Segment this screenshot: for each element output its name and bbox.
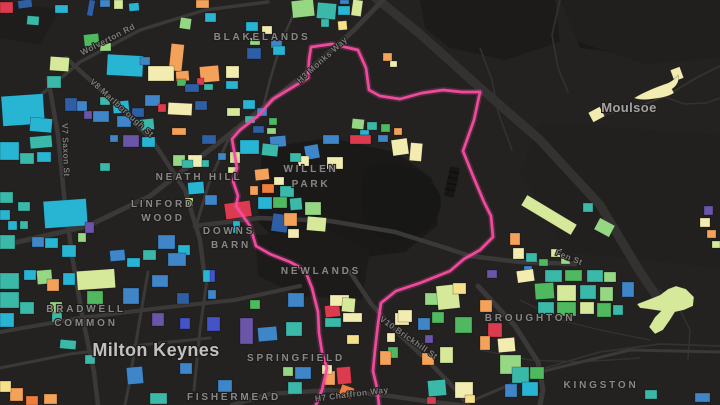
building-parcel[interactable] bbox=[250, 300, 260, 309]
building-parcel[interactable] bbox=[93, 111, 109, 122]
building-parcel[interactable] bbox=[622, 282, 634, 297]
building-parcel[interactable] bbox=[306, 216, 326, 232]
building-parcel[interactable] bbox=[100, 0, 110, 7]
building-parcel[interactable] bbox=[77, 101, 87, 111]
building-parcel[interactable] bbox=[600, 287, 613, 301]
building-parcel[interactable] bbox=[597, 303, 611, 317]
label-broughton: BROUGHTON bbox=[485, 313, 576, 324]
label-downs-barn-1: DOWNS bbox=[203, 226, 255, 237]
building-parcel[interactable] bbox=[114, 0, 123, 9]
building-parcel[interactable] bbox=[158, 235, 175, 249]
building-parcel[interactable] bbox=[390, 61, 397, 67]
building-parcel[interactable] bbox=[78, 233, 86, 242]
building-parcel[interactable] bbox=[185, 84, 199, 92]
label-downs-barn-2: BARN bbox=[211, 240, 251, 251]
building-parcel[interactable] bbox=[85, 222, 94, 233]
building-parcel[interactable] bbox=[530, 367, 544, 379]
building-parcel[interactable] bbox=[0, 210, 10, 220]
building-parcel[interactable] bbox=[168, 102, 193, 115]
label-bradwell-common-1: BRADWELL bbox=[46, 304, 126, 315]
building-parcel[interactable] bbox=[100, 163, 110, 171]
building-parcel[interactable] bbox=[106, 54, 143, 77]
building-parcel[interactable] bbox=[182, 160, 193, 168]
building-parcel[interactable] bbox=[218, 153, 226, 160]
building-parcel[interactable] bbox=[425, 335, 433, 343]
building-parcel[interactable] bbox=[30, 135, 53, 149]
building-parcel[interactable] bbox=[604, 272, 616, 282]
building-parcel[interactable] bbox=[534, 282, 554, 299]
building-parcel[interactable] bbox=[512, 367, 529, 383]
building-parcel[interactable] bbox=[341, 297, 355, 312]
building-parcel[interactable] bbox=[196, 0, 209, 8]
building-parcel[interactable] bbox=[290, 153, 301, 162]
building-parcel[interactable] bbox=[123, 135, 139, 147]
building-parcel[interactable] bbox=[267, 128, 276, 134]
building-parcel[interactable] bbox=[305, 202, 321, 215]
building-parcel[interactable] bbox=[378, 135, 388, 142]
label-linford-wood-2: WOOD bbox=[141, 213, 184, 224]
building-parcel[interactable] bbox=[343, 313, 362, 322]
building-parcel[interactable] bbox=[60, 339, 77, 349]
building-parcel[interactable] bbox=[510, 233, 520, 245]
label-moulsoe: Moulsoe bbox=[601, 100, 657, 115]
building-parcel[interactable] bbox=[76, 269, 115, 291]
building-parcel[interactable] bbox=[29, 117, 52, 133]
building-parcel[interactable] bbox=[110, 249, 126, 261]
label-v7-saxon-st: V7 Saxon St bbox=[60, 123, 72, 177]
building-parcel[interactable] bbox=[50, 56, 70, 71]
building-parcel[interactable] bbox=[246, 22, 258, 31]
building-parcel[interactable] bbox=[565, 270, 582, 281]
building-parcel[interactable] bbox=[258, 197, 272, 209]
building-parcel[interactable] bbox=[0, 273, 19, 289]
building-parcel[interactable] bbox=[143, 250, 156, 260]
building-parcel[interactable] bbox=[545, 270, 562, 282]
building-parcel[interactable] bbox=[383, 53, 392, 61]
building-parcel[interactable] bbox=[110, 135, 118, 142]
building-parcel[interactable] bbox=[250, 186, 258, 195]
building-parcel[interactable] bbox=[43, 199, 88, 229]
building-parcel[interactable] bbox=[488, 323, 502, 337]
building-parcel[interactable] bbox=[26, 396, 38, 405]
building-parcel[interactable] bbox=[240, 140, 259, 154]
building-parcel[interactable] bbox=[24, 270, 36, 280]
building-parcel[interactable] bbox=[254, 168, 269, 180]
building-parcel[interactable] bbox=[580, 302, 594, 314]
label-fishermead: FISHERMEAD bbox=[187, 392, 281, 403]
building-parcel[interactable] bbox=[65, 98, 77, 111]
building-parcel[interactable] bbox=[47, 279, 59, 291]
building-parcel[interactable] bbox=[700, 218, 710, 227]
building-parcel[interactable] bbox=[27, 15, 40, 25]
building-parcel[interactable] bbox=[37, 152, 51, 162]
building-parcel[interactable] bbox=[63, 273, 75, 285]
building-parcel[interactable] bbox=[10, 388, 23, 401]
building-parcel[interactable] bbox=[127, 258, 140, 267]
label-newlands: NEWLANDS bbox=[281, 266, 361, 277]
building-parcel[interactable] bbox=[347, 335, 359, 344]
building-parcel[interactable] bbox=[580, 285, 596, 299]
building-parcel[interactable] bbox=[325, 318, 341, 327]
building-parcel[interactable] bbox=[295, 367, 311, 379]
building-parcel[interactable] bbox=[207, 317, 220, 331]
building-parcel[interactable] bbox=[180, 363, 192, 374]
building-parcel[interactable] bbox=[321, 19, 329, 27]
building-parcel[interactable] bbox=[168, 253, 186, 266]
building-parcel[interactable] bbox=[208, 290, 216, 299]
label-willen-park-1: WILLEN bbox=[283, 164, 338, 175]
map-canvas[interactable]: BLAKELANDS NEATH HILL LINFORD WOOD DOWNS… bbox=[0, 0, 720, 405]
building-parcel[interactable] bbox=[409, 143, 423, 162]
building-parcel[interactable] bbox=[352, 118, 365, 129]
building-parcel[interactable] bbox=[129, 3, 140, 12]
building-parcel[interactable] bbox=[45, 238, 58, 248]
building-parcel[interactable] bbox=[180, 318, 190, 329]
building-parcel[interactable] bbox=[480, 336, 490, 350]
building-parcel[interactable] bbox=[87, 291, 103, 305]
building-parcel[interactable] bbox=[142, 137, 155, 147]
building-parcel[interactable] bbox=[497, 337, 515, 352]
building-parcel[interactable] bbox=[704, 206, 713, 215]
building-parcel[interactable] bbox=[453, 283, 466, 294]
building-parcel[interactable] bbox=[291, 0, 315, 18]
building-parcel[interactable] bbox=[513, 248, 524, 259]
building-parcel[interactable] bbox=[695, 393, 710, 402]
building-parcel[interactable] bbox=[516, 269, 535, 283]
building-parcel[interactable] bbox=[240, 318, 253, 344]
building-parcel[interactable] bbox=[269, 118, 277, 125]
building-parcel[interactable] bbox=[226, 66, 239, 78]
building-parcel[interactable] bbox=[398, 310, 412, 322]
building-parcel[interactable] bbox=[391, 138, 409, 156]
building-parcel[interactable] bbox=[8, 221, 17, 230]
building-parcel[interactable] bbox=[152, 313, 164, 326]
building-parcel[interactable] bbox=[273, 46, 285, 55]
building-parcel[interactable] bbox=[55, 5, 68, 13]
building-parcel[interactable] bbox=[583, 203, 593, 212]
building-parcel[interactable] bbox=[84, 111, 92, 119]
building-parcel[interactable] bbox=[387, 333, 395, 342]
building-parcel[interactable] bbox=[204, 84, 213, 90]
building-parcel[interactable] bbox=[177, 79, 186, 86]
building-parcel[interactable] bbox=[288, 293, 304, 307]
building-parcel[interactable] bbox=[262, 184, 274, 193]
building-parcel[interactable] bbox=[336, 366, 351, 384]
building-parcel[interactable] bbox=[210, 270, 215, 282]
building-parcel[interactable] bbox=[381, 124, 390, 132]
building-parcel[interactable] bbox=[62, 245, 76, 257]
label-milton-keynes: Milton Keynes bbox=[92, 340, 219, 360]
label-willen-park-2: PARK bbox=[292, 179, 331, 190]
building-parcel[interactable] bbox=[367, 122, 377, 130]
building-parcel[interactable] bbox=[340, 0, 349, 4]
building-parcel[interactable] bbox=[286, 322, 302, 336]
building-parcel[interactable] bbox=[284, 213, 297, 226]
building-parcel[interactable] bbox=[645, 390, 657, 399]
building-parcel[interactable] bbox=[427, 397, 436, 404]
map-viewport[interactable]: BLAKELANDS NEATH HILL LINFORD WOOD DOWNS… bbox=[0, 0, 720, 405]
building-parcel[interactable] bbox=[261, 143, 278, 157]
label-bradwell-common-2: COMMON bbox=[54, 318, 117, 329]
building-parcel[interactable] bbox=[152, 275, 168, 287]
building-parcel[interactable] bbox=[150, 393, 167, 404]
building-parcel[interactable] bbox=[202, 135, 216, 144]
building-parcel[interactable] bbox=[283, 367, 293, 376]
building-parcel[interactable] bbox=[20, 221, 28, 229]
building-parcel[interactable] bbox=[47, 76, 61, 88]
building-parcel[interactable] bbox=[288, 229, 299, 238]
building-parcel[interactable] bbox=[140, 57, 150, 65]
building-parcel[interactable] bbox=[394, 128, 402, 135]
building-parcel[interactable] bbox=[148, 66, 174, 81]
building-parcel[interactable] bbox=[380, 351, 391, 365]
building-parcel[interactable] bbox=[227, 108, 240, 116]
building-parcel[interactable] bbox=[440, 347, 453, 363]
building-parcel[interactable] bbox=[126, 366, 143, 384]
building-parcel[interactable] bbox=[0, 381, 11, 392]
label-neath-hill: NEATH HILL bbox=[156, 172, 243, 183]
building-parcel[interactable] bbox=[712, 241, 720, 248]
building-parcel[interactable] bbox=[289, 197, 302, 210]
building-parcel[interactable] bbox=[226, 81, 238, 89]
building-parcel[interactable] bbox=[253, 126, 264, 133]
building-parcel[interactable] bbox=[257, 326, 277, 342]
building-parcel[interactable] bbox=[243, 100, 255, 109]
building-parcel[interactable] bbox=[505, 384, 517, 397]
building-parcel[interactable] bbox=[351, 0, 363, 17]
building-parcel[interactable] bbox=[427, 379, 446, 397]
building-parcel[interactable] bbox=[613, 305, 623, 315]
building-parcel[interactable] bbox=[195, 101, 207, 110]
building-parcel[interactable] bbox=[274, 177, 284, 185]
building-parcel[interactable] bbox=[188, 181, 205, 194]
building-parcel[interactable] bbox=[205, 13, 216, 22]
building-parcel[interactable] bbox=[20, 153, 34, 164]
building-parcel[interactable] bbox=[338, 21, 348, 31]
label-springfield: SPRINGFIELD bbox=[247, 353, 345, 364]
building-parcel[interactable] bbox=[273, 197, 287, 208]
building-parcel[interactable] bbox=[158, 104, 166, 112]
building-parcel[interactable] bbox=[20, 302, 34, 314]
building-parcel[interactable] bbox=[323, 135, 339, 144]
building-parcel[interactable] bbox=[455, 317, 472, 333]
building-parcel[interactable] bbox=[18, 0, 33, 9]
building-parcel[interactable] bbox=[177, 293, 189, 304]
building-parcel[interactable] bbox=[360, 130, 369, 135]
building-parcel[interactable] bbox=[0, 142, 19, 160]
building-parcel[interactable] bbox=[480, 300, 492, 312]
building-parcel[interactable] bbox=[465, 395, 475, 403]
building-parcel[interactable] bbox=[418, 318, 430, 330]
building-parcel[interactable] bbox=[0, 235, 15, 249]
building-parcel[interactable] bbox=[338, 6, 350, 15]
building-parcel[interactable] bbox=[123, 288, 139, 304]
building-parcel[interactable] bbox=[18, 202, 30, 211]
building-parcel[interactable] bbox=[0, 313, 14, 327]
building-parcel[interactable] bbox=[0, 192, 13, 203]
building-parcel[interactable] bbox=[202, 160, 209, 167]
building-parcel[interactable] bbox=[44, 394, 57, 404]
building-parcel[interactable] bbox=[707, 230, 716, 238]
building-parcel[interactable] bbox=[179, 17, 191, 29]
building-parcel[interactable] bbox=[288, 382, 302, 394]
building-parcel[interactable] bbox=[539, 259, 548, 266]
building-parcel[interactable] bbox=[205, 195, 217, 205]
building-parcel[interactable] bbox=[218, 380, 232, 392]
building-parcel[interactable] bbox=[557, 285, 576, 301]
building-parcel[interactable] bbox=[32, 237, 44, 247]
building-parcel[interactable] bbox=[522, 382, 538, 396]
building-parcel[interactable] bbox=[526, 253, 537, 262]
building-parcel[interactable] bbox=[247, 48, 261, 59]
building-parcel[interactable] bbox=[487, 270, 497, 278]
building-parcel[interactable] bbox=[432, 312, 444, 323]
label-linford-wood-1: LINFORD bbox=[131, 199, 195, 210]
building-parcel[interactable] bbox=[350, 135, 371, 144]
building-parcel[interactable] bbox=[172, 128, 186, 135]
building-parcel[interactable] bbox=[587, 270, 603, 282]
building-parcel[interactable] bbox=[316, 2, 336, 20]
building-parcel[interactable] bbox=[0, 292, 19, 308]
label-kingston: KINGSTON bbox=[564, 380, 639, 391]
label-blakelands: BLAKELANDS bbox=[214, 32, 311, 43]
building-parcel[interactable] bbox=[0, 2, 13, 13]
